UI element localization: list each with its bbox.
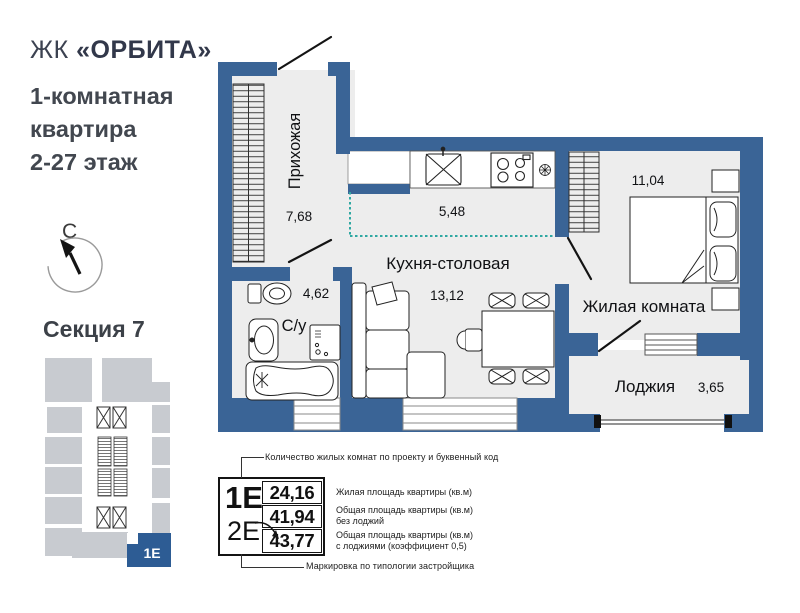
subtitle-line1: 1-комнатная <box>30 80 174 113</box>
legend-bottom-note: Маркировка по типологии застройщика <box>306 561 474 571</box>
subtitle-line3: 2-27 этаж <box>30 146 174 179</box>
minimap-elevator-icon <box>97 407 126 528</box>
window-icon <box>294 398 517 430</box>
minimap-stairs-icon <box>98 437 127 496</box>
subtitle-line2: квартира <box>30 113 174 146</box>
complex-name: «ОРБИТА» <box>76 36 212 64</box>
stove-icon <box>491 153 533 187</box>
minimap-highlight-unit: 1Е <box>127 533 171 567</box>
legend-row1-label: Жилая площадь квартиры (кв.м) <box>336 487 472 498</box>
room-label-living: Жилая комната <box>583 297 706 316</box>
highchair-icon <box>457 329 482 351</box>
legend-code-primary: 1Е <box>225 480 263 516</box>
apartment-subtitle: 1-комнатная квартира 2-27 этаж <box>30 80 174 179</box>
room-area-hallway: 7,68 <box>286 209 312 224</box>
room-label-loggia: Лоджия <box>615 377 675 396</box>
legend-box: 1Е 2Е 24,16 41,94 43,77 <box>218 477 325 556</box>
washbasin-icon <box>249 319 278 361</box>
room-area-bathroom: 4,62 <box>303 286 329 301</box>
room-label-hallway: Прихожая <box>286 113 304 189</box>
room-area-loggia: 3,65 <box>698 380 724 395</box>
legend-bracket-top <box>241 457 264 478</box>
floor-plan: Прихожая 7,68 5,48 Кухня-столовая 13,12 … <box>210 30 800 505</box>
legend-pointer-arrow <box>252 518 286 544</box>
toilet-icon <box>248 283 291 304</box>
loggia-window-icon <box>645 334 697 355</box>
legend-row3-label: Общая площадь квартиры (кв.м) с лоджиями… <box>336 530 473 551</box>
legend-row2-label: Общая площадь квартиры (кв.м) без лоджий <box>336 505 473 526</box>
entrance-door-icon <box>279 37 331 69</box>
bathtub-icon <box>246 362 338 400</box>
dining-table-icon <box>482 311 554 367</box>
washing-machine-icon <box>310 325 340 360</box>
legend-bracket-bottom <box>241 554 304 568</box>
kitchen-counter <box>410 147 555 188</box>
nightstand-icon <box>712 170 739 192</box>
legend-top-note: Количество жилых комнат по проекту и бук… <box>265 452 498 462</box>
section-title: Секция 7 <box>43 316 145 343</box>
zone-area: 5,48 <box>439 204 465 219</box>
room-area-kitchen: 13,12 <box>430 288 464 303</box>
wall-niche <box>348 151 410 184</box>
nightstand-icon <box>712 288 739 310</box>
minimap-unit-label: 1Е <box>143 545 160 561</box>
complex-prefix: ЖК <box>30 36 69 64</box>
room-label-bathroom: С/у <box>282 317 308 335</box>
complex-title: ЖК «ОРБИТА» <box>30 36 212 65</box>
section-minimap: 1Е <box>40 350 175 575</box>
north-arrow-icon <box>60 239 80 274</box>
floorplan-page: ЖК «ОРБИТА» 1-комнатная квартира 2-27 эт… <box>0 0 800 613</box>
room-label-kitchen: Кухня-столовая <box>386 254 509 273</box>
compass: С <box>38 205 118 300</box>
room-area-living: 11,04 <box>632 173 665 188</box>
legend-value-living-area: 24,16 <box>262 481 322 504</box>
